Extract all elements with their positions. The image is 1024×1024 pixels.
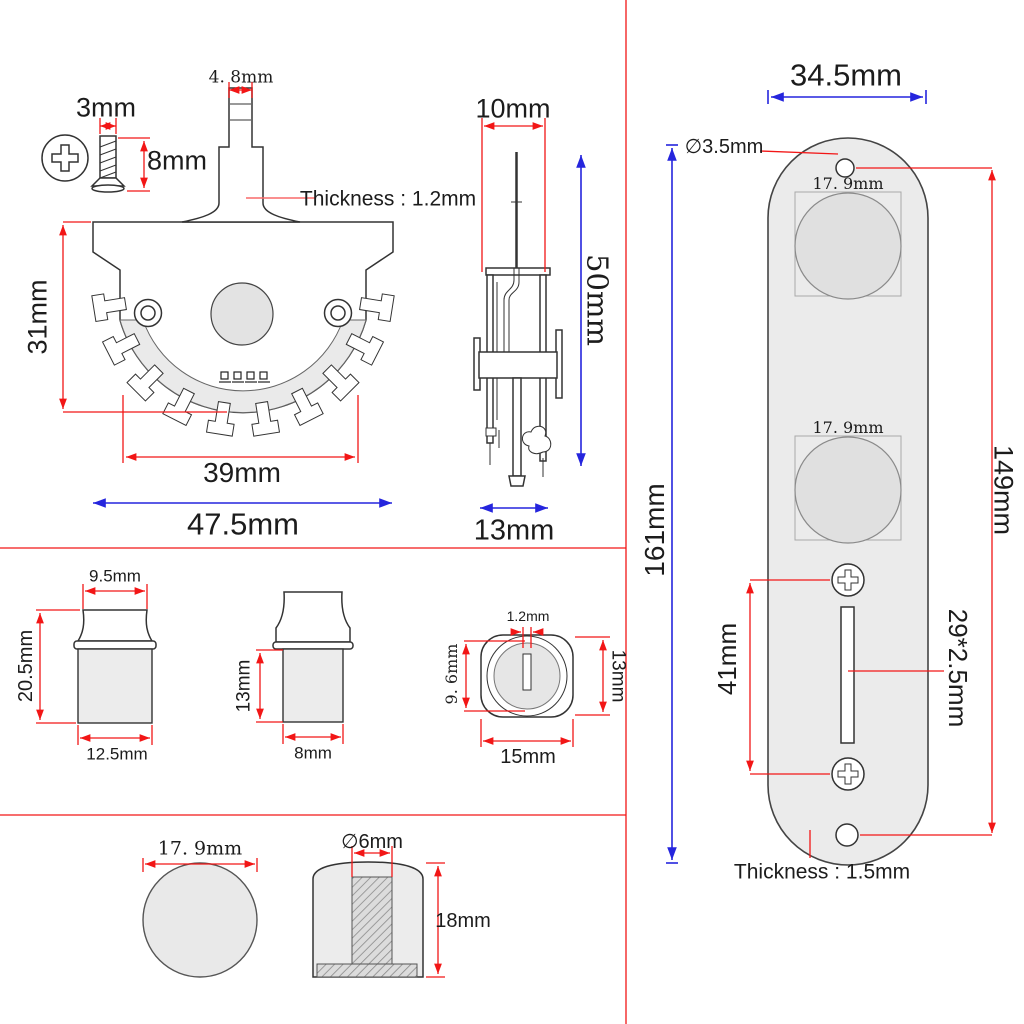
- dim-knob-large-height: 20.5mm: [16, 630, 36, 702]
- note-plate-thickness: Thickness : 1.5mm: [734, 862, 910, 883]
- dim-side-height: 50mm: [583, 254, 612, 346]
- dim-knob-face-diameter: 17. 9mm: [158, 840, 242, 859]
- dim-plate-length: 161mm: [641, 483, 669, 576]
- dim-tip-inner-diameter: 9. 6mm: [444, 644, 460, 705]
- dim-knob-small-base: 8mm: [294, 745, 332, 762]
- dim-switch-total-width: 47.5mm: [187, 509, 299, 540]
- knob-cross-section: [313, 846, 445, 977]
- dim-knob-section-height: 18mm: [435, 911, 491, 931]
- dim-tip-width: 15mm: [500, 747, 556, 767]
- knob-large-side-view: [36, 584, 156, 745]
- switch-side-view: [474, 118, 581, 508]
- dim-knob-small-height: 13mm: [235, 660, 254, 713]
- dim-screw-diameter: 3mm: [76, 95, 136, 122]
- screw-side-view: [92, 118, 150, 192]
- dim-screw-length: 8mm: [147, 148, 207, 175]
- dim-plate-knob1: 17. 9mm: [812, 176, 883, 192]
- control-plate-view: [666, 90, 992, 865]
- knob-small-side-view: [256, 592, 353, 744]
- dim-knob-large-base: 12.5mm: [86, 746, 147, 763]
- dim-side-width: 10mm: [475, 96, 550, 123]
- dim-tip-height: 13mm: [609, 650, 628, 703]
- dim-plate-screw-span: 41mm: [714, 623, 740, 695]
- dim-shaft-tip-width: 4. 8mm: [209, 70, 274, 87]
- dim-plate-hole-span: 149mm: [990, 445, 1017, 535]
- dim-plate-width: 34.5mm: [790, 60, 902, 91]
- dim-side-depth: 13mm: [474, 517, 555, 546]
- dim-plate-mount-hole: ∅3.5mm: [685, 137, 764, 157]
- note-shaft-thickness: Thickness : 1.2mm: [300, 189, 476, 210]
- screw-top-view: [42, 135, 88, 181]
- dim-knob-large-top: 9.5mm: [89, 568, 141, 585]
- switch-tip-top-view: [464, 627, 610, 747]
- technical-drawing-canvas: 3mm 8mm 4. 8mm Thickness : 1.2mm 31mm 39…: [0, 0, 1024, 1024]
- dim-lug-arc-width: 39mm: [203, 459, 281, 487]
- dim-plate-slot: 29*2.5mm: [945, 609, 971, 728]
- dim-tip-slot-width: 1.2mm: [507, 609, 550, 623]
- dim-plate-knob2: 17. 9mm: [812, 420, 883, 436]
- dim-switch-height: 31mm: [25, 279, 52, 354]
- section-dividers: [0, 0, 626, 1024]
- knob-top-view: [143, 858, 257, 977]
- dim-knob-bore: ∅6mm: [341, 832, 403, 852]
